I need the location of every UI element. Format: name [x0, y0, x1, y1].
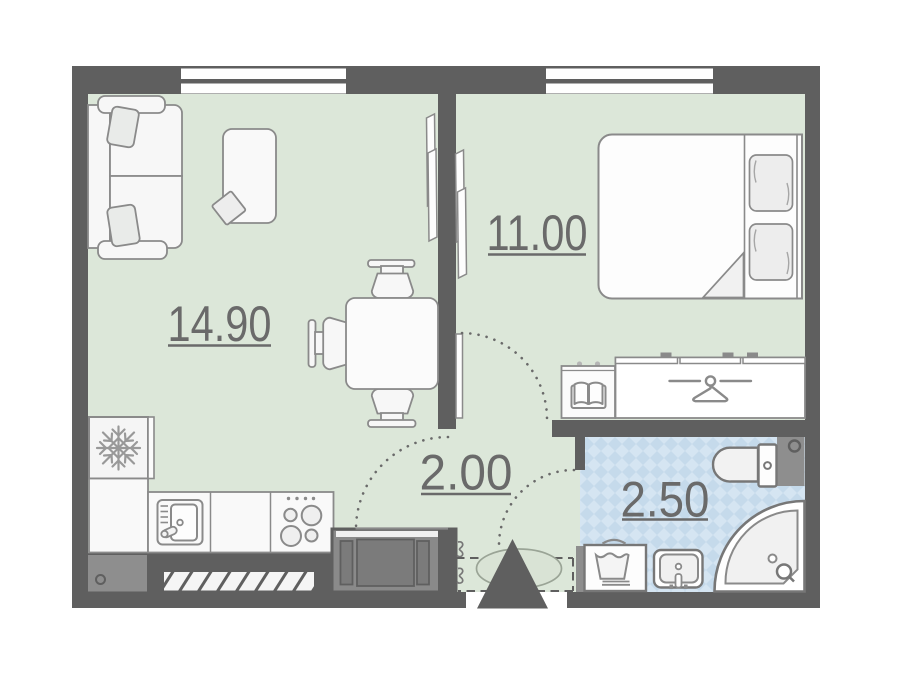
svg-text:14.90: 14.90 — [168, 296, 272, 352]
svg-text:11.00: 11.00 — [487, 205, 588, 261]
svg-text:2.00: 2.00 — [420, 445, 513, 501]
